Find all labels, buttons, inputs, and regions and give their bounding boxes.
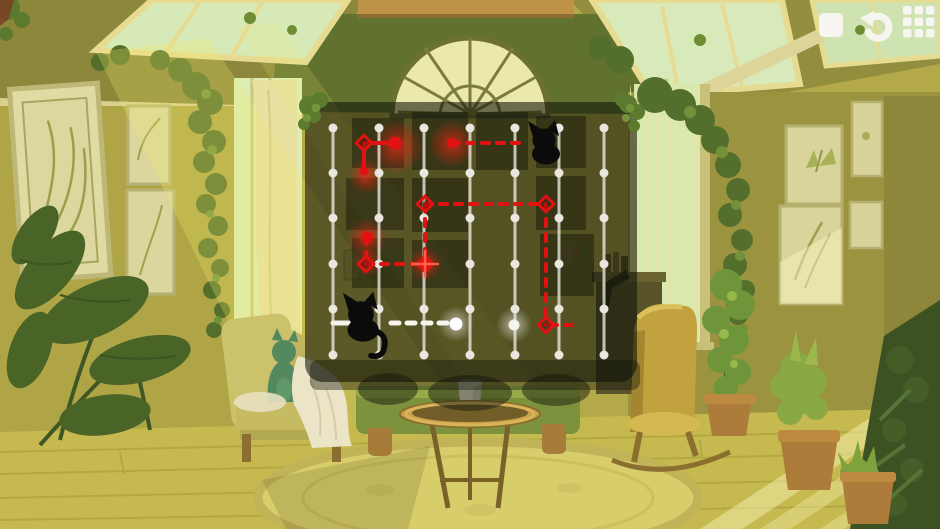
puzzle-grid-layer[interactable] [0,0,940,529]
grid-dot[interactable] [511,260,520,269]
grid-dot[interactable] [329,305,338,314]
grid-dot[interactable] [466,305,475,314]
grid-dot[interactable] [511,169,520,178]
square-button[interactable] [814,8,850,46]
red-path-dot [447,138,457,148]
grid-dot[interactable] [555,169,564,178]
board-corner-vine-left [298,92,328,130]
grid-dot[interactable] [375,169,384,178]
grid-dot[interactable] [511,124,520,133]
grid-dot[interactable] [420,305,429,314]
white-path-endpoint[interactable] [450,318,463,331]
red-diamond-node[interactable] [417,196,433,212]
grid-menu-icon [902,5,936,39]
grid-dot[interactable] [466,214,475,223]
grid-dot[interactable] [329,214,338,223]
grid-dot[interactable] [466,124,475,133]
grid-dot[interactable] [555,305,564,314]
game-screen [0,0,940,529]
grid-dot[interactable] [375,214,384,223]
grid-dot[interactable] [511,305,520,314]
grid-dot[interactable] [600,305,609,314]
grid-dot[interactable] [329,260,338,269]
grid-dot[interactable] [600,351,609,360]
undo-button[interactable] [858,6,894,44]
grid-dot[interactable] [329,351,338,360]
square-icon [814,8,848,42]
red-diamond-node[interactable] [538,317,554,333]
grid-dot[interactable] [555,260,564,269]
red-diamond-node[interactable] [538,196,554,212]
grid-dot[interactable] [466,351,475,360]
red-path-dot [360,167,369,176]
red-diamond-node[interactable] [356,135,372,151]
grid-dot[interactable] [329,169,338,178]
grid-dot[interactable] [555,214,564,223]
grid-dot[interactable] [420,351,429,360]
grid-dot[interactable] [420,169,429,178]
grid-dot[interactable] [375,124,384,133]
grid-dot[interactable] [511,214,520,223]
white-node-dot[interactable] [509,320,520,331]
grid-dot[interactable] [466,260,475,269]
grid-dot[interactable] [420,124,429,133]
grid-dot[interactable] [511,351,520,360]
level-menu-button[interactable] [902,5,938,43]
cat-marker[interactable] [528,120,560,165]
red-path-dot [389,137,402,150]
grid-dot[interactable] [329,124,338,133]
board-corner-vine-right [615,93,645,132]
grid-dot[interactable] [600,260,609,269]
grid-dot[interactable] [600,124,609,133]
red-path-dot [361,231,373,243]
grid-dot[interactable] [600,169,609,178]
undo-icon [858,6,894,42]
grid-dot[interactable] [600,214,609,223]
grid-dot[interactable] [466,169,475,178]
grid-dot[interactable] [555,351,564,360]
